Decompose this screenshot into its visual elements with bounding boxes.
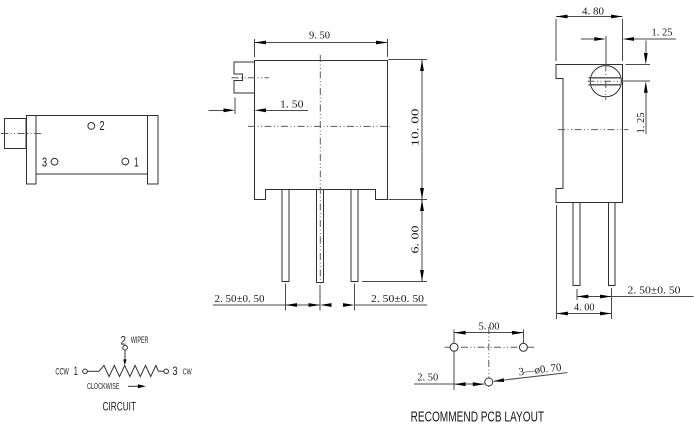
svg-text:6. 00: 6. 00 <box>409 225 421 254</box>
svg-text:CIRCUIT: CIRCUIT <box>103 400 137 414</box>
svg-text:2. 50±0. 50: 2. 50±0. 50 <box>628 285 682 297</box>
svg-text:4. 00: 4. 00 <box>574 302 595 314</box>
svg-text:5. 00: 5. 00 <box>479 321 500 333</box>
svg-text:CW: CW <box>183 366 192 376</box>
svg-text:1: 1 <box>134 155 139 169</box>
svg-text:9. 50: 9. 50 <box>309 30 330 42</box>
svg-text:2. 50±0. 50: 2. 50±0. 50 <box>371 293 425 305</box>
svg-text:1. 25: 1. 25 <box>652 27 673 39</box>
svg-text:1. 50: 1. 50 <box>280 99 304 111</box>
svg-text:WIPER: WIPER <box>131 335 149 345</box>
svg-text:4. 80: 4. 80 <box>582 6 605 18</box>
svg-text:2: 2 <box>99 119 104 133</box>
svg-text:10. 00: 10. 00 <box>409 108 421 147</box>
svg-text:CLOCKWISE: CLOCKWISE <box>87 382 120 391</box>
svg-text:CCW: CCW <box>55 367 69 377</box>
svg-text:2: 2 <box>121 336 127 348</box>
svg-text:1: 1 <box>74 366 78 378</box>
svg-text:3: 3 <box>172 366 177 378</box>
svg-text:2. 50: 2. 50 <box>417 371 438 383</box>
svg-text:1. 25: 1. 25 <box>635 112 647 133</box>
svg-text:2. 50±0. 50: 2. 50±0. 50 <box>215 293 265 305</box>
svg-text:3: 3 <box>42 156 47 170</box>
svg-text:RECOMMEND PCB LAYOUT: RECOMMEND PCB LAYOUT <box>411 409 545 425</box>
